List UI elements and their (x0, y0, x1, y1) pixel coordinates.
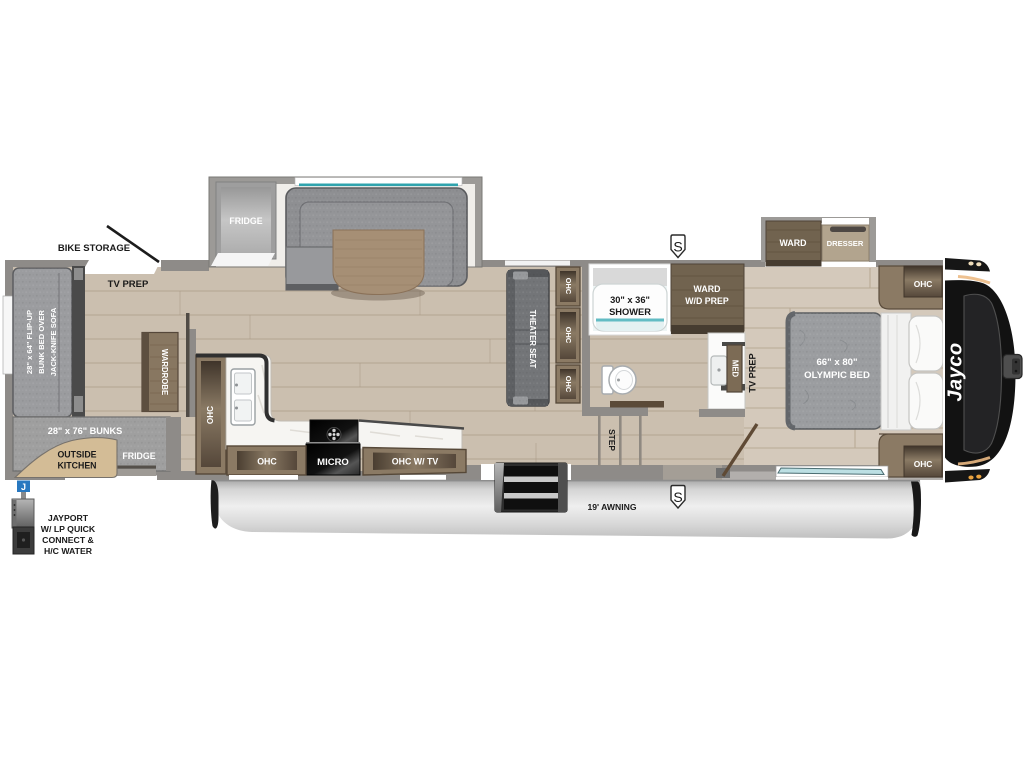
svg-text:DRESSER: DRESSER (827, 239, 864, 248)
svg-text:JACK-KNIFE SOFA: JACK-KNIFE SOFA (49, 307, 58, 376)
svg-text:BUNK BED OVER: BUNK BED OVER (37, 310, 46, 374)
svg-text:W/ LP QUICK: W/ LP QUICK (41, 524, 96, 534)
svg-text:28" x 76" BUNKS: 28" x 76" BUNKS (48, 426, 123, 436)
svg-text:THEATER SEAT: THEATER SEAT (528, 310, 537, 369)
svg-text:CONNECT &: CONNECT & (42, 535, 94, 545)
svg-text:WARDROBE: WARDROBE (160, 349, 169, 395)
svg-text:OUTSIDE: OUTSIDE (57, 450, 96, 460)
svg-text:WARD: WARD (694, 284, 721, 294)
svg-text:OHC: OHC (564, 376, 573, 393)
svg-text:66" x 80": 66" x 80" (816, 357, 857, 368)
svg-text:S: S (673, 489, 682, 505)
svg-text:S: S (673, 239, 682, 255)
svg-text:TV PREP: TV PREP (108, 279, 149, 290)
svg-text:OHC W/ TV: OHC W/ TV (392, 457, 439, 467)
svg-text:OHC: OHC (257, 457, 277, 467)
svg-text:MICRO: MICRO (317, 457, 349, 468)
svg-text:Jayco: Jayco (944, 342, 966, 401)
svg-text:MED: MED (730, 360, 739, 378)
svg-text:OHC: OHC (564, 278, 573, 295)
svg-text:STEP: STEP (607, 429, 617, 451)
svg-text:19' AWNING: 19' AWNING (588, 502, 637, 512)
svg-text:WARD: WARD (780, 238, 807, 248)
svg-text:J: J (21, 482, 26, 492)
svg-text:FRIDGE: FRIDGE (122, 451, 155, 461)
svg-text:OLYMPIC BED: OLYMPIC BED (804, 370, 870, 381)
svg-text:FRIDGE: FRIDGE (229, 216, 262, 226)
svg-text:OHC: OHC (914, 279, 933, 289)
svg-text:BIKE STORAGE: BIKE STORAGE (58, 243, 130, 254)
svg-text:28" x 64" FLIP-UP: 28" x 64" FLIP-UP (25, 310, 34, 374)
svg-text:H/C WATER: H/C WATER (44, 546, 93, 556)
svg-text:OHC: OHC (206, 406, 215, 424)
svg-text:OHC: OHC (564, 327, 573, 344)
svg-text:KITCHEN: KITCHEN (57, 461, 96, 471)
svg-text:SHOWER: SHOWER (609, 307, 651, 317)
svg-text:W/D PREP: W/D PREP (685, 296, 729, 306)
svg-text:OHC: OHC (914, 459, 933, 469)
svg-text:30" x 36": 30" x 36" (610, 295, 650, 305)
svg-text:JAYPORT: JAYPORT (48, 513, 89, 523)
svg-text:TV PREP: TV PREP (747, 353, 757, 392)
